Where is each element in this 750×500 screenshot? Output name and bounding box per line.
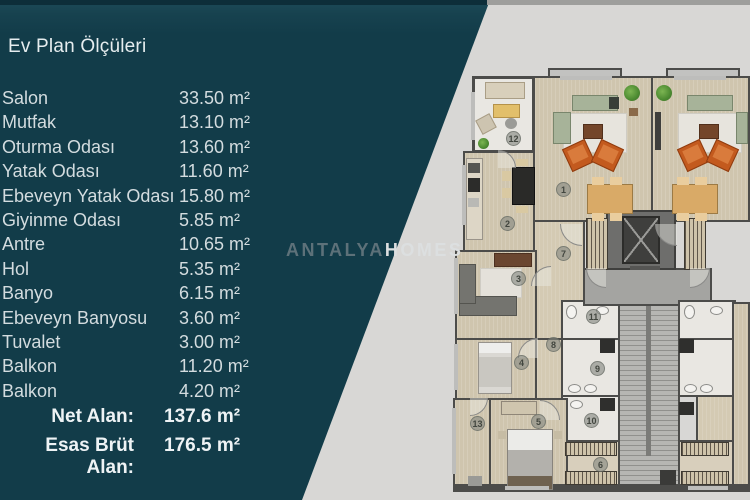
sofa xyxy=(736,112,748,144)
sofa xyxy=(687,95,733,111)
kitchen-table xyxy=(512,167,535,205)
side-table xyxy=(629,108,638,116)
washer xyxy=(600,398,615,411)
coffee-table xyxy=(699,124,719,139)
wardrobe xyxy=(565,442,617,456)
window xyxy=(452,408,456,474)
room-area: 5.35 m² xyxy=(179,257,240,281)
list-item: Hol5.35 m² xyxy=(2,257,282,281)
dining-chair xyxy=(695,213,707,221)
coffee-table xyxy=(583,124,603,139)
net-area-value: 137.6 m² xyxy=(164,406,284,428)
nightstand xyxy=(554,431,562,439)
tv-unit xyxy=(655,112,661,150)
room-name: Hol xyxy=(2,257,29,281)
list-item: Tuvalet3.00 m² xyxy=(2,330,282,354)
list-item: Antre10.65 m² xyxy=(2,232,282,256)
list-item: Banyo6.15 m² xyxy=(2,281,282,305)
gross-area-value: 176.5 m² xyxy=(164,435,284,457)
armchair-cushion xyxy=(682,144,703,164)
list-item: Balkon4.20 m² xyxy=(2,379,282,403)
wardrobe xyxy=(501,401,537,415)
window xyxy=(462,165,466,225)
balcony-furniture xyxy=(468,476,482,486)
tv-unit xyxy=(609,97,619,109)
sink xyxy=(684,384,697,393)
window xyxy=(454,258,458,314)
wardrobe xyxy=(565,471,617,485)
list-item: Balkon11.20 m² xyxy=(2,354,282,378)
plant xyxy=(656,85,672,101)
room-name: Mutfak xyxy=(2,110,56,134)
window xyxy=(471,92,475,140)
room-area: 4.20 m² xyxy=(179,379,240,403)
washer xyxy=(600,339,615,353)
room-area: 13.10 m² xyxy=(179,110,250,134)
room-number-3: 3 xyxy=(511,271,526,286)
room-dimension-list: Salon33.50 m² Mutfak13.10 m² Oturma Odas… xyxy=(2,86,282,403)
room-number-6: 6 xyxy=(593,457,608,472)
bed xyxy=(478,342,512,394)
kitchen-chair xyxy=(502,171,511,181)
list-item: Ebeveyn Banyosu3.60 m² xyxy=(2,306,282,330)
room-area: 15.80 m² xyxy=(179,184,250,208)
window xyxy=(688,486,728,490)
room-name: Oturma Odası xyxy=(2,135,115,159)
room-number-2: 2 xyxy=(500,216,515,231)
room-area: 5.85 m² xyxy=(179,208,240,232)
room-name: Balkon xyxy=(2,379,57,403)
plant xyxy=(478,138,489,149)
kitchen-chair xyxy=(516,206,528,213)
room-name: Yatak Odası xyxy=(2,159,100,183)
outdoor-chair xyxy=(505,118,517,129)
room-name: Salon xyxy=(2,86,48,110)
washer xyxy=(679,339,694,353)
antalya-homes-watermark: ANTALYAHOMES xyxy=(286,240,463,261)
window xyxy=(505,486,549,490)
sink xyxy=(700,384,713,393)
armchair-cushion xyxy=(567,144,588,164)
media-wall xyxy=(494,253,532,267)
room-area: 3.00 m² xyxy=(179,330,240,354)
bed-blanket xyxy=(508,450,552,478)
sink xyxy=(710,306,723,315)
kitchen-chair xyxy=(502,188,511,198)
stove xyxy=(468,178,480,192)
toilet xyxy=(684,305,695,319)
armchair-cushion xyxy=(597,144,618,164)
room-number-1: 1 xyxy=(556,182,571,197)
room-name: Balkon xyxy=(2,354,57,378)
room-number-7: 7 xyxy=(556,246,571,261)
room-area: 11.60 m² xyxy=(179,159,249,183)
room-number-12: 12 xyxy=(506,131,521,146)
room-number-11: 11 xyxy=(586,309,601,324)
room-number-9: 9 xyxy=(590,361,605,376)
sink xyxy=(584,384,597,393)
list-item: Ebeveyn Yatak Odası15.80 m² xyxy=(2,184,282,208)
bed-pillow xyxy=(479,343,511,353)
dining-chair xyxy=(677,213,689,221)
washer xyxy=(679,402,694,415)
shaft-pit xyxy=(660,470,676,485)
room-name: Ebeveyn Yatak Odası xyxy=(2,184,174,208)
room-number-13: 13 xyxy=(470,416,485,431)
kitchen-sink xyxy=(468,198,479,207)
page-title: Ev Plan Ölçüleri xyxy=(8,36,146,58)
room-number-10: 10 xyxy=(584,413,599,428)
room-area: 3.60 m² xyxy=(179,306,240,330)
dining-chair xyxy=(677,177,689,185)
room-name: Tuvalet xyxy=(2,330,60,354)
dining-table xyxy=(587,184,633,214)
dining-chair xyxy=(610,177,622,185)
room-area: 11.20 m² xyxy=(179,354,249,378)
dining-chair xyxy=(592,213,604,221)
room-name: Ebeveyn Banyosu xyxy=(2,306,147,330)
toilet xyxy=(566,305,577,319)
room-name: Banyo xyxy=(2,281,53,305)
list-item: Giyinme Odası5.85 m² xyxy=(2,208,282,232)
outdoor-table xyxy=(493,104,520,118)
elevator-door xyxy=(630,266,660,270)
wardrobe xyxy=(586,218,608,270)
room-number-5: 5 xyxy=(531,414,546,429)
window xyxy=(454,344,458,390)
room-area: 10.65 m² xyxy=(179,232,250,256)
watermark-homes: HOMES xyxy=(385,240,464,260)
stair-rail xyxy=(646,306,651,456)
wardrobe xyxy=(684,218,706,270)
dining-table xyxy=(672,184,718,214)
net-area-label: Net Alan: xyxy=(0,406,134,428)
room-name: Antre xyxy=(2,232,45,256)
dining-chair xyxy=(592,177,604,185)
bed-blanket xyxy=(479,357,511,387)
room-number-8: 8 xyxy=(546,337,561,352)
sink xyxy=(570,400,583,409)
sink xyxy=(568,384,581,393)
top-border-line-dark xyxy=(0,0,487,5)
window xyxy=(674,76,726,80)
nightstand xyxy=(498,431,506,439)
outdoor-sofa xyxy=(485,82,525,99)
armchair-cushion xyxy=(712,144,733,164)
window xyxy=(560,76,612,80)
fridge xyxy=(468,163,480,173)
gray-sofa xyxy=(459,264,476,304)
dining-chair xyxy=(610,213,622,221)
list-item: Mutfak13.10 m² xyxy=(2,110,282,134)
list-item: Yatak Odası11.60 m² xyxy=(2,159,282,183)
kitchen-chair xyxy=(516,159,528,166)
wardrobe xyxy=(681,471,729,485)
room-right-edge xyxy=(732,302,750,488)
room-name: Giyinme Odası xyxy=(2,208,121,232)
sofa xyxy=(553,112,571,144)
gross-area-label: Esas Brüt Alan: xyxy=(0,435,134,479)
list-item: Oturma Odası13.60 m² xyxy=(2,135,282,159)
room-number-4: 4 xyxy=(514,355,529,370)
plant xyxy=(624,85,640,101)
dining-chair xyxy=(695,177,707,185)
bed xyxy=(507,429,553,490)
room-area: 33.50 m² xyxy=(179,86,250,110)
room-area: 6.15 m² xyxy=(179,281,240,305)
watermark-antalya: ANTALYA xyxy=(286,240,385,260)
list-item: Salon33.50 m² xyxy=(2,86,282,110)
wardrobe xyxy=(681,442,729,456)
room-area: 13.60 m² xyxy=(179,135,250,159)
